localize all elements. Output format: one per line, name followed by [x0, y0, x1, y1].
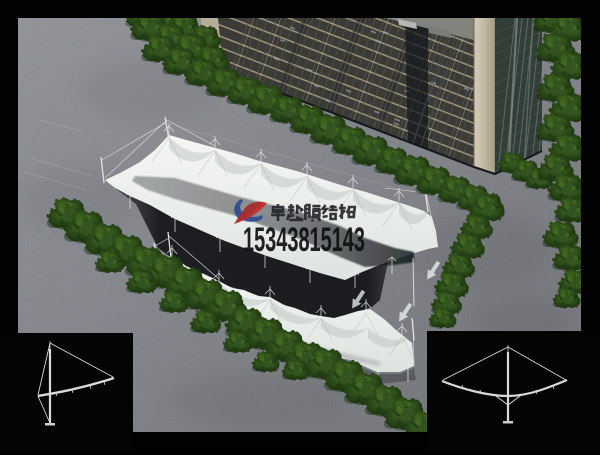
svg-text:15343815143: 15343815143 — [243, 221, 365, 259]
